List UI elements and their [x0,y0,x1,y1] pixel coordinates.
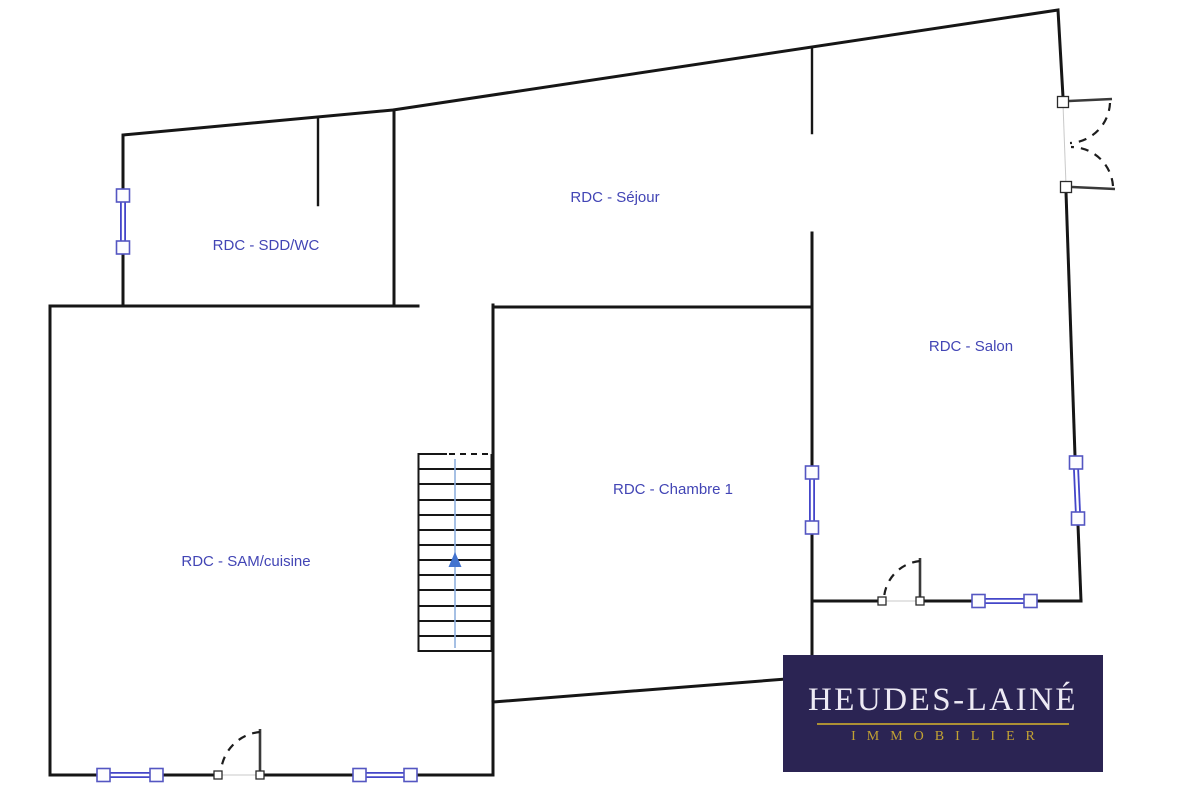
room-label-salon: RDC - Salon [929,338,1013,355]
room-label-sam-cuisine: RDC - SAM/cuisine [181,553,310,570]
staircase-symbol [419,454,492,651]
wall-outer-east-lower [1078,525,1081,601]
window-symbol [1070,456,1085,525]
window-symbol [117,189,130,254]
floor-plan-page: RDC - SDD/WC RDC - Séjour RDC - Salon RD… [0,0,1202,794]
room-label-chambre-1: RDC - Chambre 1 [613,481,733,498]
door-swing-symbol [878,558,924,605]
agency-logo-name: HEUDES-LAINÉ [808,684,1078,717]
window-symbol [972,595,1037,608]
wall-outer-east [1066,192,1075,456]
window-symbol [806,466,819,534]
window-symbol [353,769,417,782]
door-swing-symbol [214,729,264,779]
agency-logo: HEUDES-LAINÉ IMMOBILIER [783,655,1103,772]
wall-chambre-south [493,601,812,702]
french-door-symbol [1058,97,1116,193]
room-label-sejour: RDC - Séjour [570,189,659,206]
room-labels: RDC - SDD/WC RDC - Séjour RDC - Salon RD… [181,189,1013,570]
window-symbol [97,769,163,782]
wall-outer-top [123,10,1063,190]
agency-logo-rule [817,723,1069,725]
room-label-sdd-wc: RDC - SDD/WC [213,237,320,254]
agency-logo-tagline: IMMOBILIER [840,730,1046,744]
